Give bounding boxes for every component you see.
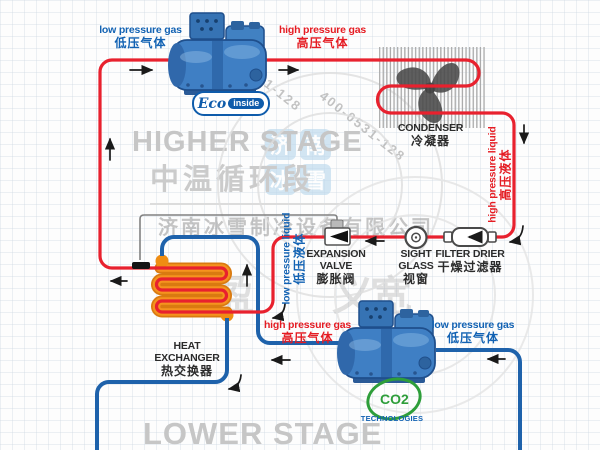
sight-glass-label: SIGHT GLASS 视窗 — [392, 249, 440, 286]
eco-logo-script: Eco — [198, 97, 227, 111]
condenser-label: CONDENSER 冷凝器 — [383, 123, 478, 148]
hs-discharge-label: high pressure gas 高压气体 — [270, 25, 375, 50]
eco-inside-logo: Eco inside — [192, 91, 270, 116]
ls-suction-label: low pressure gas 低压气体 — [428, 320, 518, 345]
lower-stage-evaporator-pipe — [97, 318, 227, 450]
flow-arrow — [273, 304, 285, 318]
hs-liquid-label: high pressure liquid 高压液体 — [487, 115, 512, 235]
diagram-canvas: 济 南 冰 雪 400-0531-128 400-0531-128 HIGHER… — [0, 0, 600, 450]
expansion-valve-icon — [325, 220, 350, 245]
co2-technologies-label: TECHNOLOGIES — [352, 414, 432, 423]
heat-exchanger-label: HEAT EXCHANGER 热交换器 — [145, 341, 229, 378]
flow-arrow — [229, 375, 241, 389]
eco-logo-badge: inside — [228, 98, 264, 110]
tev-bulb — [132, 262, 150, 269]
ls-liquid-label: low pressure liquid 低压液体 — [281, 213, 306, 305]
lower-stage-suction-pipe — [436, 350, 520, 450]
expansion-valve-label: EXPANSION VALVE 膨胀阀 — [302, 249, 370, 286]
ls-discharge-label: high pressure gas 高压气体 — [260, 320, 355, 345]
filter-drier-label: FILTER DRIER 干燥过滤器 — [432, 249, 508, 274]
hs-suction-label: low pressure gas 低压气体 — [88, 25, 193, 50]
sight-glass-icon — [406, 227, 427, 248]
